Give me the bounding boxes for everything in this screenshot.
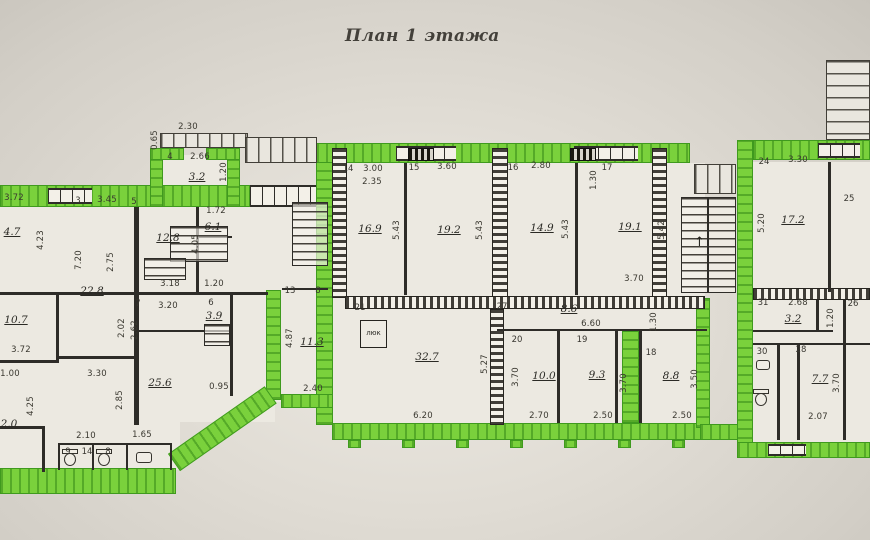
- dimension-label: 5.43: [561, 219, 571, 239]
- dimension-label: 7.20: [74, 250, 84, 270]
- dimension-label: 1.30: [649, 312, 659, 332]
- wall-hatched: [490, 309, 504, 425]
- room-area-label: 6.1: [205, 221, 222, 233]
- room-area-label: 3.9: [206, 310, 223, 322]
- dimension-label: 3.70: [511, 367, 521, 387]
- room-area-label: 19.2: [437, 224, 460, 236]
- window: [48, 188, 92, 204]
- dimension-label: 6.20: [413, 411, 433, 421]
- dimension-label: 1.30: [589, 170, 599, 190]
- dimension-label: 4.87: [285, 328, 295, 348]
- wall-pier: [564, 440, 577, 448]
- wall: [134, 207, 139, 425]
- dimension-label: 5.20: [757, 213, 767, 233]
- room-area-label: 32.7: [415, 351, 438, 363]
- room-number-label: 30: [757, 347, 768, 357]
- room-number-label: 14: [343, 164, 354, 174]
- room-area-label: 10.7: [4, 314, 27, 326]
- dimension-label: 3.30: [87, 369, 107, 379]
- wall: [0, 292, 136, 295]
- wall: [136, 292, 268, 295]
- dimension-label: 4.05: [191, 234, 201, 254]
- wall: [575, 163, 578, 295]
- dimension-label: 2.75: [106, 252, 116, 272]
- dimension-label: 1.20: [826, 308, 836, 328]
- dimension-label: 3.30: [788, 155, 808, 165]
- wall-green: [0, 468, 176, 494]
- room-area-label: 3.2: [785, 313, 802, 325]
- wall-green: [206, 148, 240, 160]
- dimension-label: 2.02: [117, 318, 127, 338]
- room-number-label: 28: [796, 345, 807, 355]
- wall-pier: [456, 440, 469, 448]
- sink-icon: [136, 452, 152, 463]
- room-number-label: 9: [65, 447, 70, 457]
- room-area-label: 7.7: [812, 373, 829, 385]
- dimension-label: 4.23: [36, 230, 46, 250]
- wall: [843, 300, 846, 440]
- dimension-label: 4.25: [26, 396, 36, 416]
- room-area-label: 3.2: [189, 171, 206, 183]
- dimension-label: 2.66: [190, 152, 210, 162]
- wall-hatched: [492, 148, 508, 298]
- room-number-label: 7: [135, 299, 140, 309]
- wall-green: [696, 298, 710, 428]
- room-area-label: 4.7: [4, 226, 21, 238]
- vent-shaft: [408, 148, 434, 161]
- dimension-label: 3.70: [624, 274, 644, 284]
- room-number-label: 27: [497, 302, 508, 312]
- floor-plan-scan: План 1 этажа: [0, 0, 870, 540]
- staircase: [204, 324, 230, 346]
- room-number-label: 6: [208, 298, 213, 308]
- wall-green: [316, 143, 333, 425]
- dimension-label: 3.50: [690, 369, 700, 389]
- room-area-label: 2.0: [1, 418, 18, 430]
- wall: [497, 329, 707, 331]
- wall: [58, 443, 60, 470]
- dimension-label: 2.70: [529, 411, 549, 421]
- wall: [816, 300, 819, 330]
- wall-pier: [510, 440, 523, 448]
- wall: [58, 443, 172, 445]
- room-number-label: 4: [167, 152, 172, 162]
- room-number-label: 19: [577, 335, 588, 345]
- dimension-label: 2.07: [808, 412, 828, 422]
- dimension-label: 2.85: [115, 390, 125, 410]
- dimension-label: 3.70: [619, 373, 629, 393]
- wall: [753, 330, 833, 332]
- wall-pier: [348, 440, 361, 448]
- wall: [404, 163, 407, 295]
- wall-green: [0, 185, 250, 207]
- room-number-label: 5: [131, 197, 136, 207]
- wall: [797, 343, 800, 440]
- dimension-label: 3.00: [363, 164, 383, 174]
- wall-pier: [402, 440, 415, 448]
- wall: [557, 331, 560, 423]
- dimension-label: 3.20: [158, 301, 178, 311]
- dimension-label: 1.20: [204, 279, 224, 289]
- dimension-label: 1.00: [0, 369, 20, 379]
- room-number-label: 8: [315, 286, 320, 296]
- stair-direction-arrow: ↑: [694, 235, 705, 250]
- dimension-label: 2.50: [672, 411, 692, 421]
- room-number-label: 16: [508, 163, 519, 173]
- wall-green: [281, 394, 333, 408]
- dimension-label: 5.43: [475, 220, 485, 240]
- staircase: [292, 202, 328, 266]
- page-title: План 1 этажа: [345, 26, 525, 46]
- dimension-label: 2.80: [531, 161, 551, 171]
- room-number-label: 21: [355, 303, 366, 313]
- wall: [0, 360, 58, 363]
- room-number-label: 25: [844, 194, 855, 204]
- stair-divider: [707, 197, 709, 293]
- dimension-label: 3.45: [97, 195, 117, 205]
- room-area-label: 8.8: [663, 370, 680, 382]
- room-number-label: 8: [105, 447, 110, 457]
- wall: [230, 292, 233, 396]
- wall-green: [737, 140, 753, 458]
- room-area-label: 19.1: [618, 221, 641, 233]
- wall: [639, 331, 642, 423]
- dimension-label: 3.60: [437, 162, 457, 172]
- dimension-label: 6.60: [581, 319, 601, 329]
- room-number-label: 3: [75, 196, 80, 206]
- room-number-label: 14: [82, 447, 93, 457]
- floor-hatch-box: люк: [360, 320, 387, 348]
- wall: [57, 356, 137, 359]
- dimension-label: 5.43: [392, 220, 402, 240]
- room-area-label: 10.0: [532, 370, 555, 382]
- dimension-label: 0.65: [150, 130, 160, 150]
- dimension-label: 2.68: [788, 298, 808, 308]
- wall: [753, 343, 870, 345]
- room-number-label: 15: [409, 163, 420, 173]
- wall: [136, 330, 198, 332]
- wall-pier: [618, 440, 631, 448]
- room-number-label: 26: [848, 299, 859, 309]
- wall-green: [332, 423, 706, 440]
- window: [818, 143, 860, 158]
- wall: [615, 331, 618, 423]
- dimension-label: 2.62: [130, 320, 140, 340]
- room-area-label: 12.8: [156, 232, 179, 244]
- room-number-label: 18: [646, 348, 657, 358]
- wall-pier: [672, 440, 685, 448]
- room-area-label: 17.2: [781, 214, 804, 226]
- room-area-label: 9.3: [589, 369, 606, 381]
- room-area-label: 8.6: [561, 303, 578, 315]
- dimension-label: 3.72: [4, 193, 24, 203]
- dimension-label: 5.42: [657, 220, 667, 240]
- dimension-label: 2.30: [178, 122, 198, 132]
- room-area-label: 11.3: [300, 336, 323, 348]
- sink-icon: [756, 360, 770, 370]
- entry-porch: [160, 133, 248, 148]
- dimension-label: 3.70: [832, 373, 842, 393]
- window: [768, 444, 806, 456]
- room-number-label: 17: [602, 163, 613, 173]
- room-number-label: 20: [512, 335, 523, 345]
- dimension-label: 5.27: [480, 354, 490, 374]
- room-area-label: 25.6: [148, 377, 171, 389]
- room-number-label: 31: [758, 298, 769, 308]
- room-area-label: 14.9: [530, 222, 553, 234]
- dimension-label: 1.72: [206, 206, 226, 216]
- dimension-label: 1.20: [219, 162, 229, 182]
- wall: [126, 443, 128, 470]
- dimension-label: 2.40: [303, 384, 323, 394]
- entry-porch: [826, 60, 870, 140]
- wall: [42, 426, 45, 472]
- room-number-label: 13: [285, 286, 296, 296]
- dimension-label: 2.50: [593, 411, 613, 421]
- wall-green: [266, 290, 281, 400]
- room-number-label: 24: [759, 157, 770, 167]
- room-area-label: 16.9: [358, 223, 381, 235]
- dimension-label: 2.35: [362, 177, 382, 187]
- entry-porch: [245, 137, 317, 163]
- dimension-label: 1.65: [132, 430, 152, 440]
- vent-shaft: [570, 148, 596, 161]
- staircase: [144, 258, 186, 280]
- dimension-label: 0.95: [209, 382, 229, 392]
- dimension-label: 3.18: [160, 279, 180, 289]
- wall: [828, 162, 831, 292]
- floor-hatch-label: люк: [361, 329, 386, 337]
- toilet-icon: [755, 393, 767, 406]
- wall: [56, 292, 59, 363]
- wall: [170, 443, 172, 470]
- entry-porch: [694, 164, 736, 194]
- wall: [777, 343, 780, 440]
- wall-green: [700, 424, 740, 440]
- dimension-label: 2.10: [76, 431, 96, 441]
- dimension-label: 3.72: [11, 345, 31, 355]
- wall-hatched: [345, 296, 705, 309]
- room-area-label: 22.8: [80, 285, 103, 297]
